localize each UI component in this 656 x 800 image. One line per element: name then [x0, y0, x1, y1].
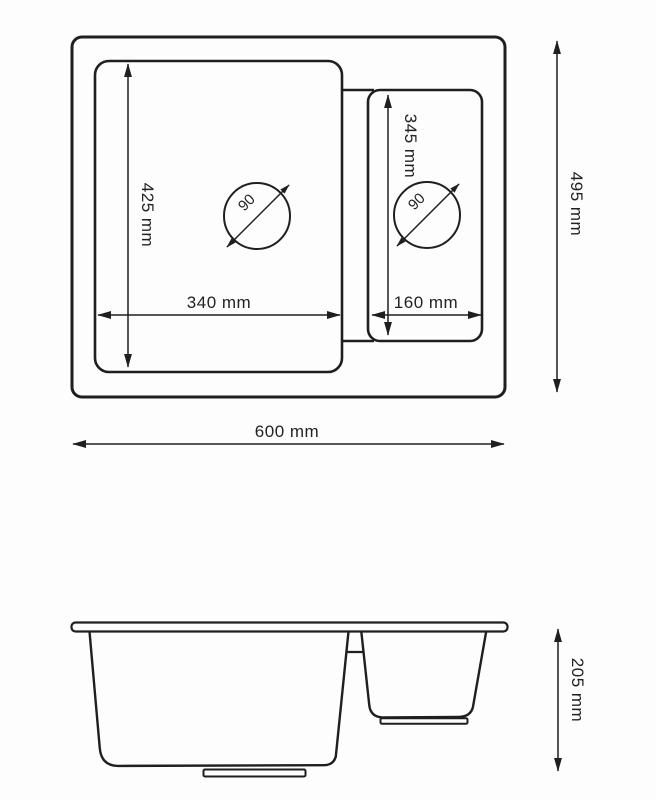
half-drain-diameter-label: 90	[405, 190, 429, 214]
half-drain-diameter-line	[397, 184, 459, 246]
top-view: 90 90 425 mm 340 mm 345 mm 160 mm 495 mm…	[72, 37, 586, 444]
front-rim-bar	[72, 623, 508, 632]
half-bowl-depth-label: 345 mm	[401, 114, 420, 178]
front-main-bowl-profile	[90, 632, 349, 766]
main-bowl-outline	[95, 61, 342, 372]
front-main-bowl-foot	[204, 770, 306, 777]
front-half-bowl-foot	[381, 718, 468, 724]
sink-dimension-drawing: 90 90 425 mm 340 mm 345 mm 160 mm 495 mm…	[0, 0, 656, 800]
front-half-bowl-profile	[361, 632, 486, 718]
front-view: 205 mm	[72, 623, 588, 777]
overall-depth-label: 495 mm	[567, 172, 586, 236]
main-bowl-depth-label: 425 mm	[138, 183, 157, 247]
half-bowl-width-label: 160 mm	[394, 293, 458, 312]
main-drain-diameter-line	[227, 185, 289, 247]
main-drain-diameter-label: 90	[235, 191, 259, 215]
drawing-canvas: 90 90 425 mm 340 mm 345 mm 160 mm 495 mm…	[0, 0, 656, 800]
overall-height-label: 205 mm	[568, 658, 587, 722]
overall-width-label: 600 mm	[255, 422, 319, 441]
main-bowl-width-label: 340 mm	[187, 293, 251, 312]
